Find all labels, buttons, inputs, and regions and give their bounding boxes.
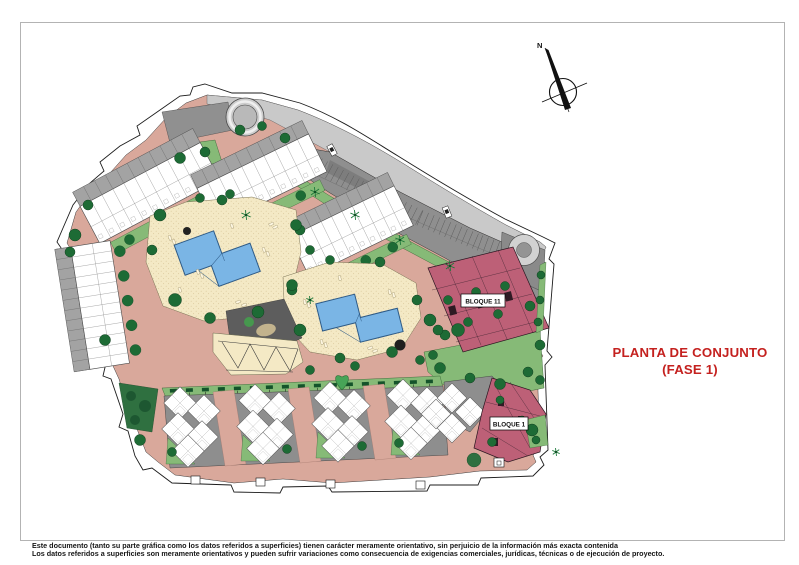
site-plan-drawing: BLOQUE 11 BLOQUE 1 N	[0, 0, 799, 565]
title-line-2: (FASE 1)	[600, 361, 780, 378]
bloque-1-label: BLOQUE 1	[490, 417, 528, 430]
villas-south-band	[162, 376, 448, 468]
north-compass: N	[537, 41, 587, 112]
bloque-11-label: BLOQUE 11	[461, 294, 505, 307]
bloque-11-label-text: BLOQUE 11	[465, 299, 501, 306]
bloque-1-label-text: BLOQUE 1	[493, 422, 526, 429]
north-label: N	[537, 41, 542, 50]
pool-area-2	[283, 262, 421, 360]
title-line-1: PLANTA DE CONJUNTO	[600, 344, 780, 361]
disclaimer-line-2: Los datos referidos a superficies son me…	[32, 550, 777, 558]
drawing-title: PLANTA DE CONJUNTO (FASE 1)	[600, 344, 780, 379]
disclaimer-block: Este documento (tanto su parte gráfica c…	[32, 542, 777, 559]
